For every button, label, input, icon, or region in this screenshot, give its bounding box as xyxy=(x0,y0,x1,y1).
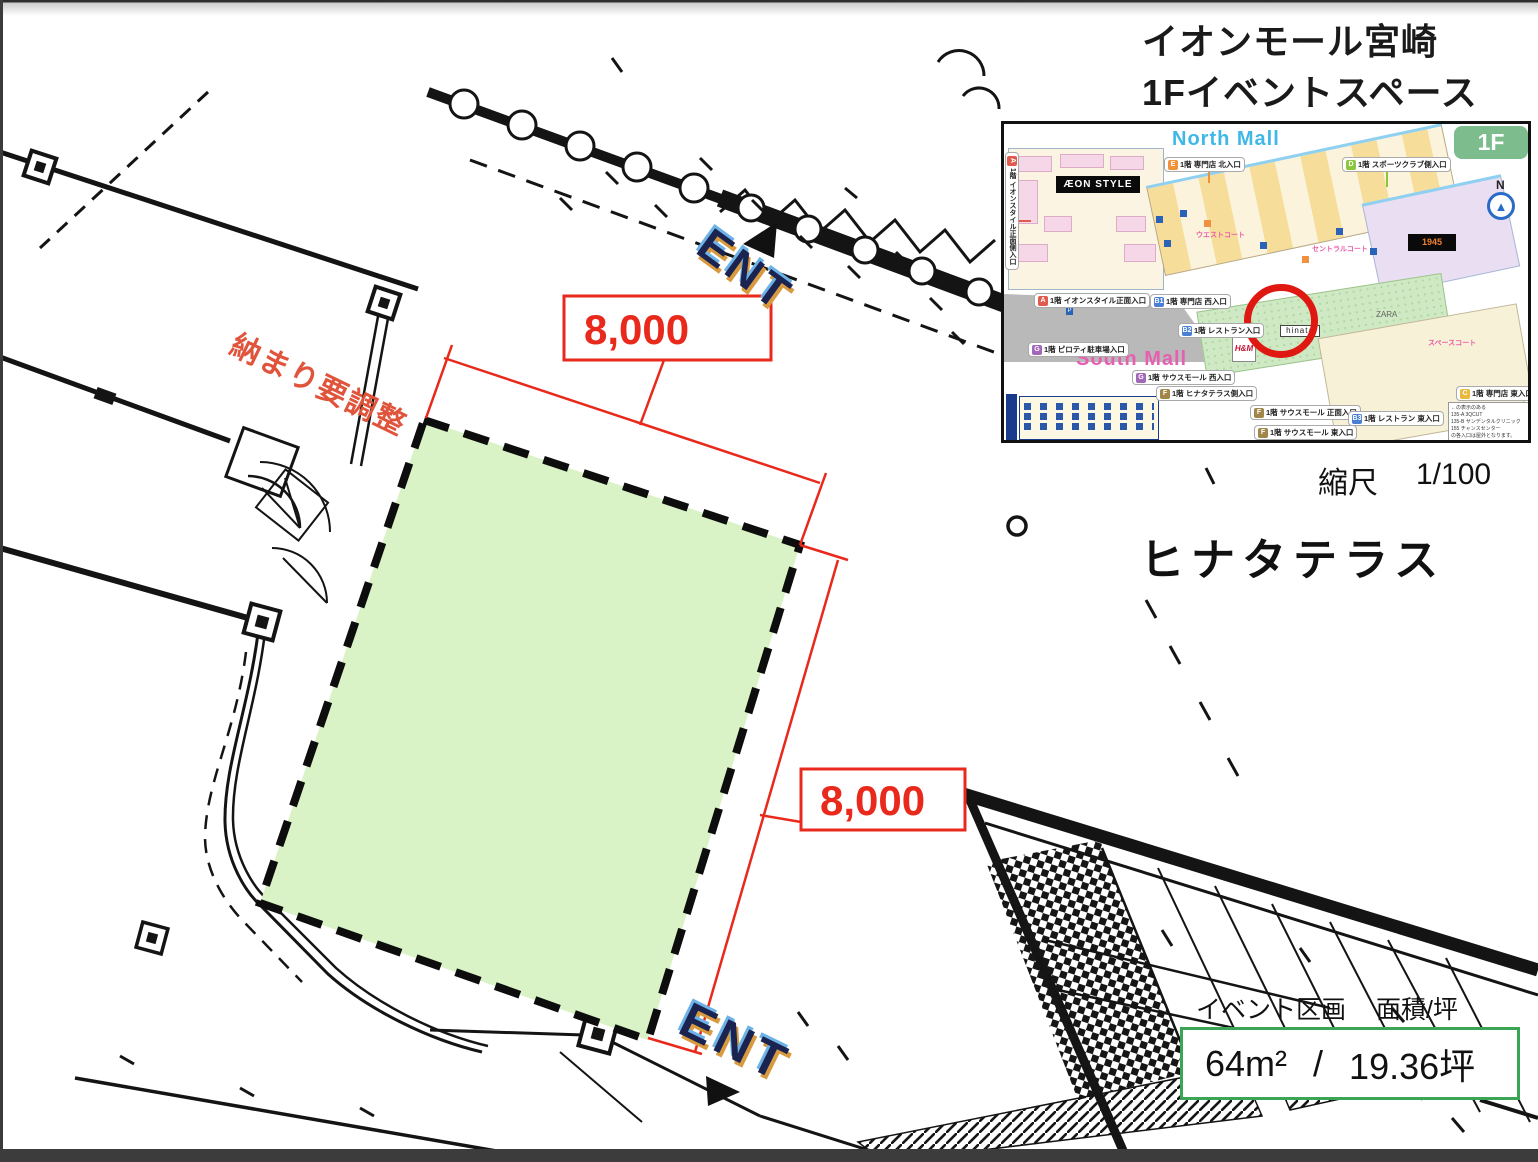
map-aeon-style-logo: ÆON STYLE xyxy=(1056,176,1140,193)
map-shop-block xyxy=(1016,180,1038,224)
facility-icon xyxy=(1180,210,1187,217)
map-note-line: 135-B サンデンタルクリニック xyxy=(1451,419,1529,426)
dim-top-value: 8,000 xyxy=(584,306,689,353)
facility-icon xyxy=(1156,216,1163,223)
map-entrance-f-hinata: F 1階 ヒナタテラス側入口 xyxy=(1156,386,1257,401)
map-entrance-c: C 1階 専門店 東入口 xyxy=(1456,386,1531,401)
facility-icon xyxy=(1370,248,1377,255)
area-separator: / xyxy=(1313,1043,1323,1085)
map-entrance-a-side: A 1階 イオンスタイル正面側入口 xyxy=(1005,152,1019,270)
entrance-letter-chip: F xyxy=(1258,428,1268,438)
map-shop-block xyxy=(1018,244,1048,262)
mall-map-inset: ÆON STYLE 1945 P North Mall South Mall 1… xyxy=(1001,121,1531,443)
compass-label: N xyxy=(1496,178,1505,192)
entrance-letter-chip: G xyxy=(1136,373,1146,383)
map-shop-block xyxy=(1110,156,1144,170)
map-note-box: ←の表示のある 135-A 3QCUT 135-B サンデンタルクリニック 15… xyxy=(1448,402,1531,442)
map-shop-block xyxy=(1124,244,1156,262)
window-top-edge xyxy=(0,0,1538,16)
compass-icon: ▲ xyxy=(1487,192,1515,220)
page-title-line2: 1Fイベントスペース xyxy=(1142,67,1478,118)
facility-icon xyxy=(1336,228,1343,235)
page-title: イオンモール宮崎 1Fイベントスペース xyxy=(1142,16,1478,118)
entrance-letter-chip: B3 xyxy=(1352,414,1362,424)
map-entrance-a-front: A 1階 イオンスタイル正面入口 xyxy=(1034,293,1150,308)
entrance-letter-chip: F xyxy=(1254,408,1264,418)
legend-icon-row xyxy=(1024,413,1154,420)
entrance-letter-chip: A xyxy=(1007,156,1017,166)
map-court-west: ウエストコート xyxy=(1196,230,1245,240)
facility-icon xyxy=(1260,242,1267,249)
facility-icon xyxy=(1204,220,1211,227)
map-entrance-g-west: G 1階 サウスモール 西入口 xyxy=(1132,370,1235,385)
area-sqm: 64m² xyxy=(1205,1043,1287,1085)
map-entrance-b3: B3 1階 レストラン 東入口 xyxy=(1348,411,1444,426)
entrance-letter-chip: B1 xyxy=(1154,297,1164,307)
window-bottom-edge xyxy=(0,1149,1538,1162)
plan-canopy xyxy=(40,51,1010,358)
dim-right-value: 8,000 xyxy=(820,777,925,824)
map-zara-store: ZARA xyxy=(1376,310,1397,319)
area-value-box: 64m² / 19.36坪 xyxy=(1180,1027,1520,1100)
map-court-space: スペースコート xyxy=(1428,338,1476,348)
map-shop-block xyxy=(1060,154,1104,168)
facility-icon xyxy=(1302,256,1309,263)
space-name: ヒナタテラス xyxy=(1140,524,1445,588)
entrance-letter-chip: F xyxy=(1160,389,1170,399)
map-north-mall-label: North Mall xyxy=(1172,128,1280,151)
entrance-letter-chip: A xyxy=(1038,296,1048,306)
event-area-polygon xyxy=(260,420,800,1040)
event-space-highlight-circle xyxy=(1244,284,1318,358)
scale-label: 縮尺 xyxy=(1318,458,1378,502)
area-panel-label: イベント区画 面積/坪 xyxy=(1196,990,1458,1026)
legend-icon-row xyxy=(1024,403,1154,410)
entrance-letter-chip: G xyxy=(1032,345,1042,355)
document-page: 8,000 8,000 ENT ENT ENT ENT ENT ENT 納まり要… xyxy=(0,0,1538,1162)
map-note-line: 135-A 3QCUT xyxy=(1451,412,1529,419)
map-note-line: ←の表示のある xyxy=(1451,405,1529,412)
map-note-line: の各入口は屋外となります。 xyxy=(1451,433,1529,440)
map-entrance-b1: B1 1階 専門店 西入口 xyxy=(1150,294,1231,309)
map-floor-badge: 1F xyxy=(1454,126,1528,159)
entrance-letter-chip: D xyxy=(1346,160,1356,170)
plan-structure-bottom-right xyxy=(858,793,1538,1162)
map-entrance-d: D 1階 スポーツクラブ側入口 xyxy=(1342,157,1451,172)
facility-icon xyxy=(1164,240,1171,247)
map-shop-block xyxy=(1018,156,1052,172)
area-label-right: 面積/坪 xyxy=(1376,990,1458,1026)
map-entrance-e: E 1階 専門店 北入口 xyxy=(1164,157,1245,172)
page-title-line1: イオンモール宮崎 xyxy=(1142,16,1478,67)
map-store-1945: 1945 xyxy=(1408,234,1456,251)
map-entrance-f-east: F 1階 サウスモール 東入口 xyxy=(1254,425,1357,440)
entrance-leader xyxy=(1386,170,1388,187)
scale-row: 縮尺 1/100 xyxy=(1318,458,1491,502)
map-legend-strip xyxy=(1006,394,1017,440)
map-entrance-g-piloti: G 1階 ピロティ駐車場入口 xyxy=(1028,342,1129,357)
map-entrance-f-front: F 1階 サウスモール 正面入口 xyxy=(1250,405,1361,420)
entrance-leader xyxy=(1018,220,1031,222)
plan-small-circle xyxy=(1008,517,1026,535)
map-note-line: 155 チャンスセンター xyxy=(1451,426,1529,433)
area-tsubo: 19.36坪 xyxy=(1349,1038,1475,1090)
area-label-left: イベント区画 xyxy=(1196,990,1346,1026)
scale-value: 1/100 xyxy=(1416,458,1491,502)
parking-icon: P xyxy=(1066,308,1073,315)
entrance-letter-chip: B2 xyxy=(1182,326,1192,336)
map-entrance-b2: B2 1階 レストラン入口 xyxy=(1178,323,1264,338)
map-shop-block xyxy=(1116,216,1146,232)
entrance-letter-chip: E xyxy=(1168,160,1178,170)
map-shop-block xyxy=(1044,216,1072,232)
entrance-letter-chip: C xyxy=(1460,389,1470,399)
window-left-edge xyxy=(0,0,3,1162)
legend-icon-row xyxy=(1024,423,1154,430)
map-legend-icons xyxy=(1019,396,1159,440)
entrance-arrow-bottom xyxy=(706,1076,740,1106)
map-court-central: セントラルコート xyxy=(1312,244,1368,254)
